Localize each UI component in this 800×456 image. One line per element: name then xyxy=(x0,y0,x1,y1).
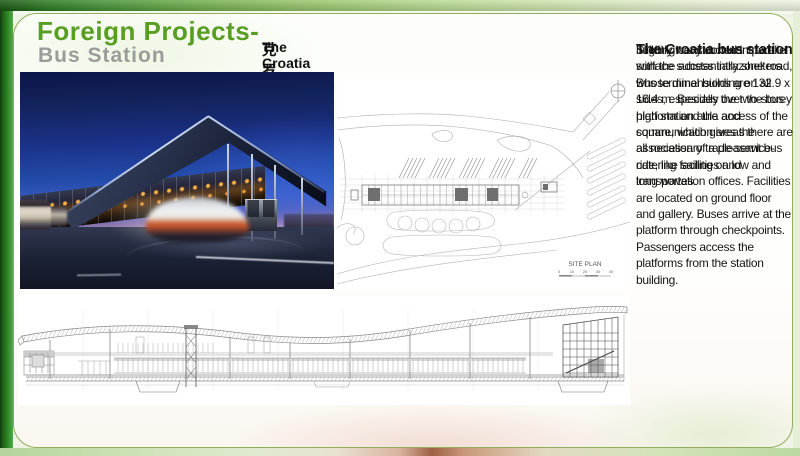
stair-block xyxy=(563,317,618,377)
svg-text:20: 20 xyxy=(583,269,588,274)
site-plan-svg: SITE PLAN 0 10 20 30 40 xyxy=(337,78,630,290)
photo-column xyxy=(301,178,303,234)
photo-parked-bus xyxy=(20,200,51,230)
photo-checkpoint-booth xyxy=(245,199,278,232)
left-accent-strip xyxy=(0,11,13,448)
slide: Foreign Projects- Bus Station The Croati… xyxy=(0,0,800,456)
compass-icon xyxy=(611,80,625,102)
left-annex xyxy=(24,351,54,375)
site-plan-label: SITE PLAN xyxy=(568,261,602,268)
section-drawing xyxy=(18,295,630,405)
site-plan-drawing: SITE PLAN 0 10 20 30 40 xyxy=(337,78,630,290)
svg-text:40: 40 xyxy=(609,269,614,274)
bottom-gradient-strip xyxy=(0,448,800,456)
svg-text:0: 0 xyxy=(558,269,561,274)
right-margin xyxy=(793,11,800,448)
ground-slab xyxy=(26,375,624,392)
glazing-row xyxy=(78,358,526,375)
station-photo xyxy=(20,72,334,289)
scale-bar: 0 10 20 30 40 xyxy=(558,269,614,277)
parking-bars xyxy=(586,137,626,220)
svg-text:30: 30 xyxy=(596,269,601,274)
photo-parked-bus-far xyxy=(48,207,67,227)
wavy-roof xyxy=(22,306,627,343)
page-title: Foreign Projects- xyxy=(37,16,259,47)
bus-bay-hatching xyxy=(399,158,537,178)
top-gradient-bar xyxy=(0,0,800,11)
description-paragraph-2: Slightly wavy dominant roof surface subs… xyxy=(636,42,793,190)
section-svg xyxy=(18,295,630,405)
page-subtitle: Bus Station xyxy=(38,44,166,68)
svg-text:10: 10 xyxy=(570,269,575,274)
